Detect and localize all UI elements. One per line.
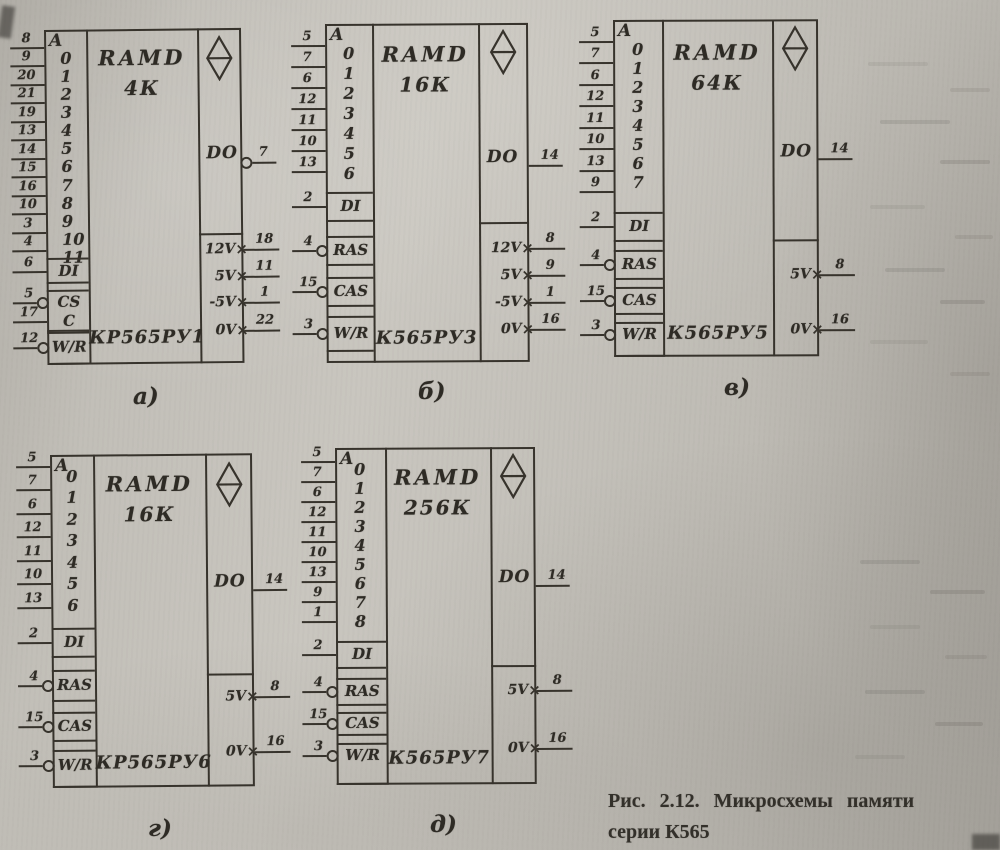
pin-stub xyxy=(13,347,37,349)
pin-number: 11 xyxy=(302,526,332,539)
capacity-label: 256К xyxy=(385,497,490,518)
address-bit-label: 10 xyxy=(62,232,84,248)
address-bit-label: 4 xyxy=(61,123,72,139)
pin-number: 10 xyxy=(293,135,323,148)
control-box-top xyxy=(52,628,95,630)
pin-number: 2 xyxy=(293,191,323,204)
pin-number: 7 xyxy=(580,47,610,60)
control-box-bottom xyxy=(52,740,95,742)
pin-stub xyxy=(12,213,46,215)
address-bit-label: 5 xyxy=(67,576,78,592)
control-box-bottom xyxy=(614,355,663,357)
pin-stub xyxy=(536,690,572,692)
pin-stub xyxy=(292,250,316,252)
pin-stub xyxy=(292,206,326,208)
control-box-bottom xyxy=(52,700,95,702)
di-label: DI xyxy=(56,635,93,650)
capacity-label: 16К xyxy=(93,504,205,525)
pin-stub xyxy=(301,541,335,543)
x-cross-icon: × xyxy=(521,268,534,283)
pin-number: 3 xyxy=(20,750,50,763)
address-bit-label: 2 xyxy=(66,512,77,528)
address-bit-label: 6 xyxy=(61,159,72,175)
do-label: DO xyxy=(206,145,238,162)
cas-label: CAS xyxy=(340,716,384,731)
pin-number: 12 xyxy=(302,506,332,519)
pin-stub xyxy=(529,165,563,167)
part-number-label: К565РУ5 xyxy=(663,324,773,342)
x-cross-icon: × xyxy=(522,322,535,337)
ras-label: RAS xyxy=(56,678,93,693)
pin-stub xyxy=(292,150,326,152)
control-box-top xyxy=(614,212,663,214)
pin-stub xyxy=(13,302,37,304)
address-bit-label: 3 xyxy=(354,519,365,535)
x-cross-icon: × xyxy=(528,683,541,698)
pin-number: 2 xyxy=(303,639,333,652)
address-bit-label: 5 xyxy=(355,557,366,573)
pin-stub xyxy=(580,334,604,336)
control-box-bottom xyxy=(326,220,373,222)
pin-number: 4 xyxy=(303,676,333,689)
ras-label: RAS xyxy=(330,243,371,258)
pin-number: 2 xyxy=(581,211,611,224)
pin-number: 21 xyxy=(12,87,42,100)
do-label: DO xyxy=(499,569,531,586)
pin-number: 13 xyxy=(12,124,42,137)
pin-stub xyxy=(19,765,43,767)
address-bit-label: 6 xyxy=(632,156,643,172)
pin-stub xyxy=(303,755,327,757)
pin-stub xyxy=(293,333,317,335)
pin-stub xyxy=(16,489,50,491)
address-bit-label: 9 xyxy=(62,214,73,230)
address-bit-label: 1 xyxy=(354,481,365,497)
address-group-label: A xyxy=(330,27,343,44)
x-cross-icon: × xyxy=(247,744,260,759)
pin-number: 6 xyxy=(13,256,43,269)
figure-2-12-diagram: A0819220321419513614715816910103114DI6CS… xyxy=(0,0,1000,850)
address-bit-label: 3 xyxy=(343,106,354,122)
x-cross-icon: × xyxy=(521,295,534,310)
pin-number: 10 xyxy=(580,133,610,146)
control-box-top xyxy=(326,277,373,279)
pin-stub xyxy=(579,62,613,64)
pin-stub xyxy=(17,583,51,585)
pin-stub xyxy=(13,271,47,273)
pin-number: 10 xyxy=(303,546,333,559)
capacity-label: 4К xyxy=(87,77,198,98)
pin-number: 4 xyxy=(581,249,611,262)
address-bit-label: 0 xyxy=(354,462,365,478)
pin-number: 9 xyxy=(537,259,563,272)
pin-number: 14 xyxy=(537,149,563,162)
pin-number: 11 xyxy=(580,112,610,125)
pin-number: 11 xyxy=(18,545,48,558)
x-cross-icon: × xyxy=(235,242,248,257)
control-box-top xyxy=(337,743,387,745)
figure-caption: Рис. 2.12. Микросхемы памяти серии К565 xyxy=(608,786,1000,848)
pin-number: 16 xyxy=(262,735,288,748)
pin-stub xyxy=(302,691,326,693)
control-box-top xyxy=(336,641,386,643)
power-label: 12V xyxy=(481,241,521,255)
control-box-bottom xyxy=(337,783,387,785)
pin-number: 9 xyxy=(11,50,41,63)
address-bit-label: 4 xyxy=(67,555,78,571)
pin-number: 1 xyxy=(537,286,563,299)
pin-stub xyxy=(292,129,326,131)
control-box-top xyxy=(47,290,89,292)
control-box-top xyxy=(614,287,663,289)
pin-number: 11 xyxy=(251,260,277,273)
pin-stub xyxy=(579,105,613,107)
power-label: -5V xyxy=(481,295,521,309)
x-cross-icon: × xyxy=(236,323,249,338)
address-bit-label: 3 xyxy=(632,99,643,115)
di-label: DI xyxy=(618,219,661,234)
pin-stub xyxy=(529,275,565,277)
pin-number: 7 xyxy=(302,466,332,479)
address-bit-label: 1 xyxy=(66,490,77,506)
address-bit-label: 1 xyxy=(632,61,643,77)
address-bit-label: 8 xyxy=(355,614,366,630)
control-box-bottom xyxy=(47,282,89,284)
w-r-label: W/R xyxy=(618,327,661,342)
address-bit-label: 7 xyxy=(355,595,366,611)
rhombus-with-horizontal-bar-icon xyxy=(204,35,235,85)
di-label: DI xyxy=(330,199,371,214)
pin-number: 3 xyxy=(13,217,43,230)
pin-number: 12 xyxy=(580,90,610,103)
pin-stub xyxy=(18,642,52,644)
address-bit-label: 6 xyxy=(344,166,355,182)
rhombus-with-horizontal-bar-icon xyxy=(214,461,244,511)
pin-number: 10 xyxy=(18,568,48,581)
pin-number: 13 xyxy=(580,155,610,168)
pin-stub xyxy=(819,329,855,331)
pin-stub xyxy=(291,66,325,68)
pin-stub xyxy=(529,302,565,304)
pin-stub xyxy=(537,748,573,750)
pin-number: 7 xyxy=(17,474,47,487)
address-bit-label: 4 xyxy=(344,126,355,142)
pin-stub xyxy=(301,461,335,463)
pin-stub xyxy=(302,723,326,725)
power-label: -5V xyxy=(202,295,236,309)
pin-number: 14 xyxy=(261,573,287,586)
pin-stub xyxy=(17,560,51,562)
right-column-section-divider xyxy=(491,665,536,667)
right-column-section-divider xyxy=(773,239,819,241)
pin-stub xyxy=(252,162,276,164)
control-box-top xyxy=(327,316,374,318)
pin-number: 12 xyxy=(292,93,322,106)
rhombus-with-horizontal-bar-icon xyxy=(780,25,810,75)
control-box-bottom xyxy=(336,734,386,736)
address-bit-label: 2 xyxy=(632,80,643,96)
power-label: 5V xyxy=(775,267,811,281)
do-label: DO xyxy=(487,149,519,166)
pin-stub xyxy=(301,501,335,503)
pin-number: 5 xyxy=(17,451,47,464)
pin-stub xyxy=(18,726,42,728)
pin-number: 6 xyxy=(17,498,47,511)
pin-number: 12 xyxy=(14,332,44,345)
pin-stub xyxy=(11,139,45,141)
pin-number: 8 xyxy=(544,674,570,687)
address-bit-label: 3 xyxy=(61,105,72,121)
c-label: C xyxy=(51,314,87,329)
pin-stub xyxy=(254,696,290,698)
pin-number: 7 xyxy=(292,51,322,64)
pin-number: 4 xyxy=(19,670,49,683)
pin-stub xyxy=(818,158,852,160)
do-label: DO xyxy=(214,573,246,590)
pin-number: 15 xyxy=(12,161,42,174)
pin-stub xyxy=(17,607,51,609)
address-bit-label: 4 xyxy=(632,118,643,134)
x-cross-icon: × xyxy=(246,689,259,704)
address-bit-label: 6 xyxy=(67,598,78,614)
do-label: DO xyxy=(780,143,812,160)
power-label: 0V xyxy=(775,322,811,336)
cas-label: CAS xyxy=(330,284,371,299)
ram-type-label: RAMD xyxy=(93,473,205,495)
w-r-label: W/R xyxy=(341,748,385,763)
chip-g-sublabel: г) xyxy=(148,815,172,842)
pin-stub xyxy=(253,589,287,591)
address-bit-label: 3 xyxy=(67,533,78,549)
pin-number: 10 xyxy=(13,198,43,211)
part-number-label: КР565РУ6 xyxy=(96,754,208,773)
pin-number: 6 xyxy=(302,486,332,499)
address-bit-label: 0 xyxy=(343,46,354,62)
control-box-top xyxy=(46,258,88,260)
address-bit-label: 2 xyxy=(354,500,365,516)
pin-number: 2 xyxy=(19,627,49,640)
power-label: 5V xyxy=(202,269,236,283)
pin-number: 8 xyxy=(827,258,853,271)
pin-stub xyxy=(17,536,51,538)
address-bit-label: 6 xyxy=(355,576,366,592)
control-box-bottom xyxy=(336,704,386,706)
address-bit-label: 7 xyxy=(62,178,73,194)
x-cross-icon: × xyxy=(521,241,534,256)
x-cross-icon: × xyxy=(529,741,542,756)
power-label: 5V xyxy=(493,683,528,697)
pin-number: 20 xyxy=(11,69,41,82)
pin-stub xyxy=(301,521,335,523)
x-cross-icon: × xyxy=(236,295,249,310)
pin-stub xyxy=(530,329,566,331)
chip-b-diagram: A051726312411510613DI2RAS4CAS15W/R3DO141… xyxy=(325,23,530,363)
power-label: 5V xyxy=(209,689,246,703)
x-cross-icon: × xyxy=(236,269,249,284)
control-box-bottom xyxy=(53,786,96,788)
capacity-label: 64К xyxy=(662,72,772,92)
pin-number: 3 xyxy=(581,319,611,332)
address-group-label: A xyxy=(340,451,353,468)
di-label: DI xyxy=(340,647,384,662)
pin-stub xyxy=(13,321,47,323)
figure-caption-line1: Рис. 2.12. Микросхемы памяти xyxy=(608,786,1000,817)
pin-number: 15 xyxy=(303,708,333,721)
pin-stub xyxy=(580,170,614,172)
pin-number: 8 xyxy=(11,32,41,45)
part-number-label: К565РУ3 xyxy=(374,329,480,348)
chip-v-sublabel: в) xyxy=(724,374,750,401)
pin-number: 6 xyxy=(292,72,322,85)
ram-type-label: RAMD xyxy=(86,46,197,68)
pin-stub xyxy=(579,148,613,150)
pin-stub xyxy=(580,191,614,193)
pin-number: 9 xyxy=(581,176,611,189)
pin-number: 16 xyxy=(827,313,853,326)
pin-stub xyxy=(244,330,280,332)
control-box-top xyxy=(614,322,663,324)
control-box-bottom xyxy=(326,264,373,266)
pin-number: 11 xyxy=(292,114,322,127)
pin-stub xyxy=(244,302,280,304)
address-group-label: A xyxy=(618,23,631,40)
pin-number: 8 xyxy=(537,232,563,245)
power-label: 0V xyxy=(202,323,236,337)
power-label: 0V xyxy=(494,741,529,755)
pin-number: 9 xyxy=(303,586,333,599)
chip-a-diagram: A0819220321419513614715816910103114DI6CS… xyxy=(44,28,244,365)
pin-number: 1 xyxy=(303,606,333,619)
pin-number: 19 xyxy=(12,106,42,119)
pin-stub xyxy=(302,654,336,656)
pin-stub xyxy=(12,176,46,178)
cas-label: CAS xyxy=(56,719,93,734)
pin-stub xyxy=(579,41,613,43)
control-box-top xyxy=(326,192,373,194)
pin-number: 5 xyxy=(14,287,44,300)
address-bit-label: 5 xyxy=(61,141,72,157)
control-box-bottom xyxy=(336,667,386,669)
pin-number: 13 xyxy=(293,156,323,169)
pin-number: 14 xyxy=(544,569,570,582)
pin-number: 12 xyxy=(18,521,48,534)
pin-number: 3 xyxy=(294,318,324,331)
pin-number: 4 xyxy=(13,235,43,248)
pin-stub xyxy=(12,250,46,252)
pin-number: 17 xyxy=(14,306,44,319)
ras-label: RAS xyxy=(340,684,384,699)
pin-stub xyxy=(580,264,604,266)
control-box-bottom xyxy=(614,313,663,315)
pin-stub xyxy=(302,581,336,583)
part-number-label: КР565РУ1 xyxy=(89,328,200,347)
pin-stub xyxy=(580,300,604,302)
pin-stub xyxy=(579,84,613,86)
address-bit-label: 5 xyxy=(344,146,355,162)
power-label: 0V xyxy=(482,322,522,336)
control-box-top xyxy=(52,712,95,714)
ram-type-label: RAMD xyxy=(385,466,490,488)
x-cross-icon: × xyxy=(811,322,824,337)
control-box-bottom xyxy=(52,656,95,658)
pin-number: 14 xyxy=(12,143,42,156)
pin-stub xyxy=(536,585,570,587)
control-box-top xyxy=(326,236,373,238)
pin-stub xyxy=(580,226,614,228)
pin-number: 4 xyxy=(293,235,323,248)
power-label: 5V xyxy=(481,268,521,282)
w-r-label: W/R xyxy=(51,340,87,355)
pin-number: 14 xyxy=(826,142,852,155)
address-bit-label: 1 xyxy=(343,66,354,82)
control-box-top xyxy=(336,678,386,680)
w-r-label: W/R xyxy=(57,758,94,773)
pin-stub xyxy=(10,65,44,67)
pin-stub xyxy=(302,601,336,603)
pin-stub xyxy=(529,248,565,250)
pin-stub xyxy=(291,108,325,110)
part-number-label: К565РУ7 xyxy=(387,749,492,768)
pin-number: 5 xyxy=(302,446,332,459)
pin-stub xyxy=(291,87,325,89)
pin-stub xyxy=(302,621,336,623)
address-bit-label: 0 xyxy=(632,42,643,58)
pin-stub xyxy=(291,45,325,47)
pin-stub xyxy=(301,481,335,483)
pin-number: 22 xyxy=(252,314,278,327)
figure-caption-line2: серии К565 xyxy=(608,817,1000,848)
ras-label: RAS xyxy=(618,257,661,272)
control-box-bottom xyxy=(614,240,663,242)
pin-number: 5 xyxy=(580,26,610,39)
pin-number: 13 xyxy=(18,592,48,605)
pin-stub xyxy=(292,171,326,173)
control-box-bottom xyxy=(326,305,373,307)
chip-g-diagram: A051726312411510613DI2RAS4CAS15W/R3DO145… xyxy=(50,453,255,788)
pin-number: 13 xyxy=(303,566,333,579)
chip-v-diagram: A05172631241151061379DI2RAS4CAS15W/R3DO1… xyxy=(613,19,819,357)
chip-a-sublabel: а) xyxy=(133,383,159,410)
pin-number: 15 xyxy=(293,276,323,289)
chip-d-diagram: A0517263124115106137981DI2RAS4CAS15W/R3D… xyxy=(335,447,537,785)
x-cross-icon: × xyxy=(811,267,824,282)
pin-stub xyxy=(18,685,42,687)
power-label: 12V xyxy=(201,242,235,256)
control-box-top xyxy=(47,332,89,334)
control-box-bottom xyxy=(327,350,374,352)
pin-stub xyxy=(244,276,280,278)
power-label: 0V xyxy=(210,744,247,758)
rhombus-with-horizontal-bar-icon xyxy=(488,29,518,79)
pin-number: 16 xyxy=(544,732,570,745)
right-column-section-divider xyxy=(207,673,254,675)
pin-number: 6 xyxy=(580,69,610,82)
control-box-top xyxy=(53,750,96,752)
address-bit-label: 5 xyxy=(632,137,643,153)
right-column-section-divider xyxy=(479,222,529,224)
cas-label: CAS xyxy=(618,293,661,308)
address-bit-label: 2 xyxy=(61,87,72,103)
pin-stub xyxy=(17,513,51,515)
rhombus-with-horizontal-bar-icon xyxy=(498,453,528,503)
address-group-label: A xyxy=(49,33,62,50)
pin-number: 8 xyxy=(262,680,288,693)
pin-number: 16 xyxy=(538,313,564,326)
pin-stub xyxy=(11,102,45,104)
address-bit-label: 7 xyxy=(633,175,644,191)
pin-stub xyxy=(16,466,50,468)
ram-type-label: RAMD xyxy=(372,43,478,65)
